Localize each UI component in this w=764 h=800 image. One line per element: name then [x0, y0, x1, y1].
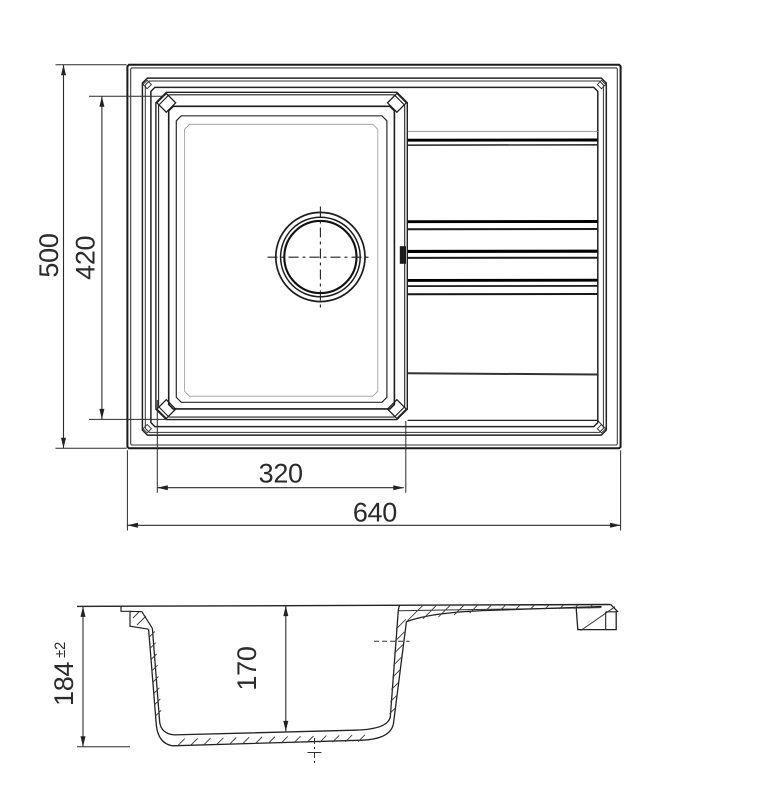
svg-text:420: 420 [71, 236, 101, 280]
svg-text:170: 170 [232, 646, 262, 690]
svg-text:500: 500 [34, 233, 64, 277]
svg-text:640: 640 [353, 498, 397, 528]
svg-text:320: 320 [259, 459, 303, 489]
